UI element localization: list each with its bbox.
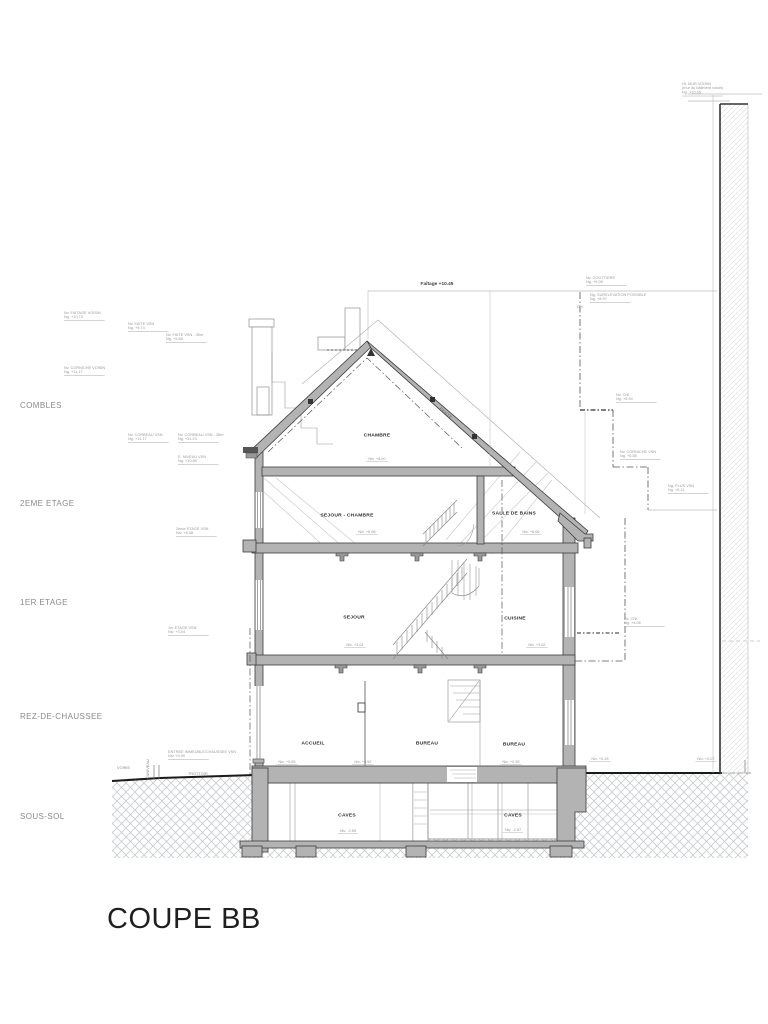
drawing-title: COUPE BB <box>107 903 261 936</box>
floor-label-combles: COMBLES <box>20 401 62 410</box>
annotation: Nv. CORNICHE VOISINNg. +11.17 <box>64 366 105 376</box>
annotation: Ng. SURELEVATION POSSIBLENg. +8.97 <box>590 293 646 303</box>
annotation: E. NIVEAU VSNNg. +10.80 <box>178 455 219 465</box>
floor-label-1er: 1ER ETAGE <box>20 598 68 607</box>
room-label-caves-left: CAVES <box>338 812 356 818</box>
cut-structure <box>240 341 593 857</box>
ridge-level-label: Faîtage +10.45 <box>421 281 454 286</box>
annotation: Nv. FAITE VSNNg. +9.74 <box>128 322 169 332</box>
street-label-voirie: VOIRIE <box>117 766 130 770</box>
ch-label: CH <box>577 305 583 309</box>
stairs <box>393 500 480 778</box>
room-label-caves-right: CAVES <box>504 812 522 818</box>
annotation: Nv. CNINg. +4.06 <box>624 617 665 627</box>
room-label-bureau-2: BUREAU <box>503 741 525 747</box>
street-label-caniveau: CANIVEAU <box>146 759 150 779</box>
annotation: Nv. CNINg. +6.94 <box>616 393 657 403</box>
floor-label-rdc: REZ-DE-CHAUSSEE <box>20 712 102 721</box>
level-label-court-left: Niv. +0.15 <box>589 757 611 762</box>
level-label-first-left: Niv. +3.04 <box>344 643 366 648</box>
annotation: Nv. FAITE VSN - 35mNg. +9.88 <box>166 333 207 343</box>
room-label-accueil: ACCUEIL <box>301 740 324 746</box>
annotation: ENTREE IMMEUBLE/CHAUSSEE VSNNiv. +0.00 <box>168 750 236 760</box>
level-label-ground-left: Niv. +0.55 <box>276 760 298 765</box>
gabarit-lines <box>575 292 648 661</box>
room-label-bureau-1: BUREAU <box>416 740 438 746</box>
floor-label-2eme: 2EME ETAGE <box>20 499 75 508</box>
annotation: Nv. FAITAGE VOISINNg. +10.73 <box>64 311 105 321</box>
window-openings <box>253 492 574 782</box>
level-label-first-right: Niv. +3.02 <box>526 643 548 648</box>
room-label-sejour: SEJOUR <box>343 614 365 620</box>
floor-label-sous-sol: SOUS-SOL <box>20 812 65 821</box>
level-label-second-left: Niv. +6.08 <box>356 530 378 535</box>
party-wall <box>688 94 762 773</box>
section-drawing-svg <box>0 0 768 1024</box>
door-handle <box>358 703 365 712</box>
annotation: Ng. PLUS VSNNg. +5.11 <box>668 484 709 494</box>
street-label-trottoir: TROTTOIR <box>188 772 208 776</box>
annotation: Nv. GOUTTIERENg. +9.08 <box>586 276 627 286</box>
room-label-cuisine: CUISINE <box>504 615 525 621</box>
chimney-outlines <box>249 308 360 415</box>
annotation: Nv. CORBEAU VSN - 35mNg. +11.23 <box>178 433 223 443</box>
level-label-ground-right: Niv. +0.35 <box>500 760 522 765</box>
architectural-section-sheet: COMBLES 2EME ETAGE 1ER ETAGE REZ-DE-CHAU… <box>0 0 768 1024</box>
annotation: Nv. CORNICHE VSNNg. +6.55 <box>620 450 661 460</box>
annotation: Nv. CORBEAU VSNNg. +11.17 <box>128 433 169 443</box>
level-label-cave-right: Niv. -2.57 <box>503 828 524 833</box>
level-label-court-right: Niv. +0.07 <box>695 757 717 762</box>
annotation: Ht. MUR VOISIN(mur du bâtiment voisin)Ng… <box>682 82 723 96</box>
level-label-ground-mid: Niv. +0.52 <box>352 760 374 765</box>
room-label-salle-de-bains: SALLE DE BAINS <box>492 510 536 516</box>
level-label-second-right: Niv. +6.06 <box>520 530 542 535</box>
room-label-chambre: CHAMBRE <box>364 432 391 438</box>
level-label-cave-left: Niv. -2.55 <box>338 829 359 834</box>
annotation: 2eme ETAGE VSNNiv. +6.08 <box>176 527 217 537</box>
room-label-sejour-chambre: SEJOUR - CHAMBRE <box>320 512 373 518</box>
annotation: 1er ETAGE VSNNiv. +3.04 <box>168 626 209 636</box>
level-label-attic: Niv. +8.00 <box>366 457 388 462</box>
